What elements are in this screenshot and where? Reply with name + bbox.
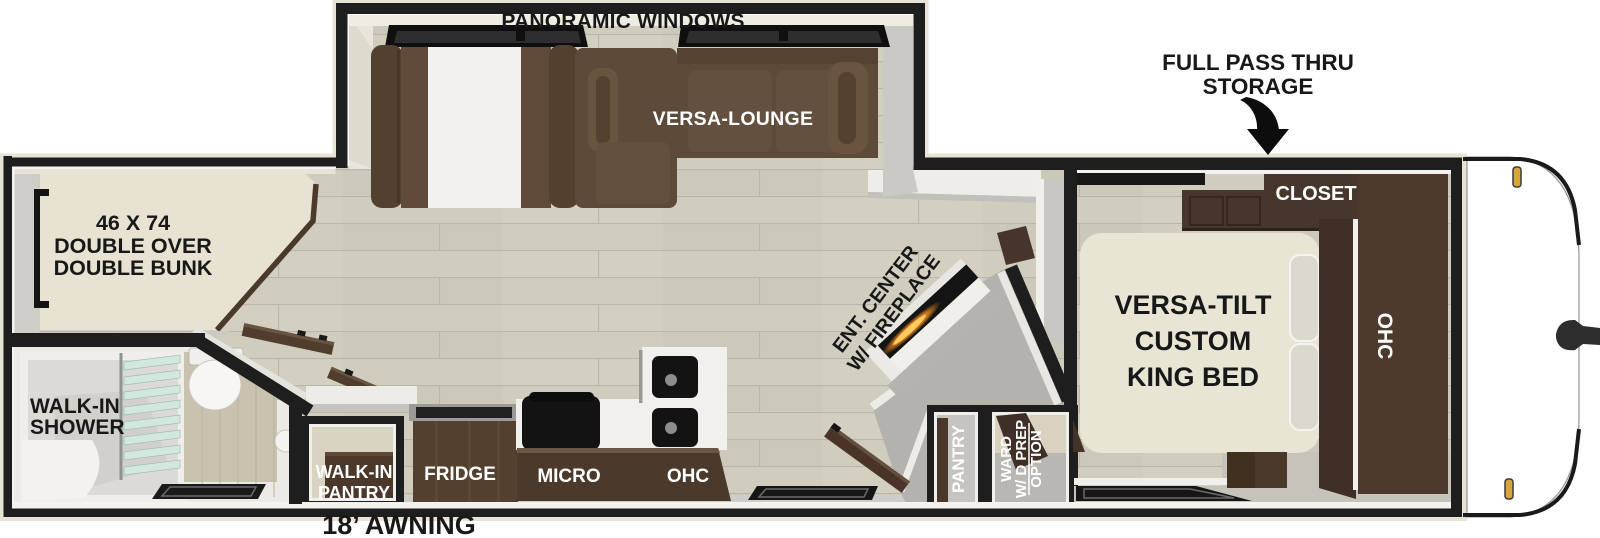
svg-text:VERSA-TILT: VERSA-TILT <box>1115 290 1272 320</box>
svg-text:OPTION: OPTION <box>1028 430 1045 488</box>
svg-text:PANTRY: PANTRY <box>949 424 968 493</box>
svg-text:SHOWER: SHOWER <box>30 416 125 439</box>
svg-text:OHC: OHC <box>1373 313 1396 360</box>
svg-text:46 X 74: 46 X 74 <box>96 211 170 235</box>
svg-text:CLOSET: CLOSET <box>1275 183 1356 205</box>
svg-text:KING BED: KING BED <box>1127 362 1259 392</box>
svg-text:CUSTOM: CUSTOM <box>1135 326 1252 356</box>
svg-text:OHC: OHC <box>667 466 710 487</box>
svg-text:FRIDGE: FRIDGE <box>424 464 496 485</box>
svg-text:18’ AWNING: 18’ AWNING <box>322 510 476 538</box>
svg-text:PANORAMIC WINDOWS: PANORAMIC WINDOWS <box>501 10 744 33</box>
svg-text:MICRO: MICRO <box>537 466 600 487</box>
svg-text:WALK-IN: WALK-IN <box>316 462 393 482</box>
svg-text:DOUBLE OVER: DOUBLE OVER <box>54 234 212 258</box>
svg-text:STORAGE: STORAGE <box>1203 74 1314 99</box>
svg-text:WALK-IN: WALK-IN <box>30 395 120 418</box>
svg-text:VERSA-LOUNGE: VERSA-LOUNGE <box>653 108 814 130</box>
svg-text:FULL PASS THRU: FULL PASS THRU <box>1162 50 1354 75</box>
svg-text:PANTRY: PANTRY <box>318 483 390 503</box>
svg-text:DOUBLE BUNK: DOUBLE BUNK <box>54 256 213 280</box>
